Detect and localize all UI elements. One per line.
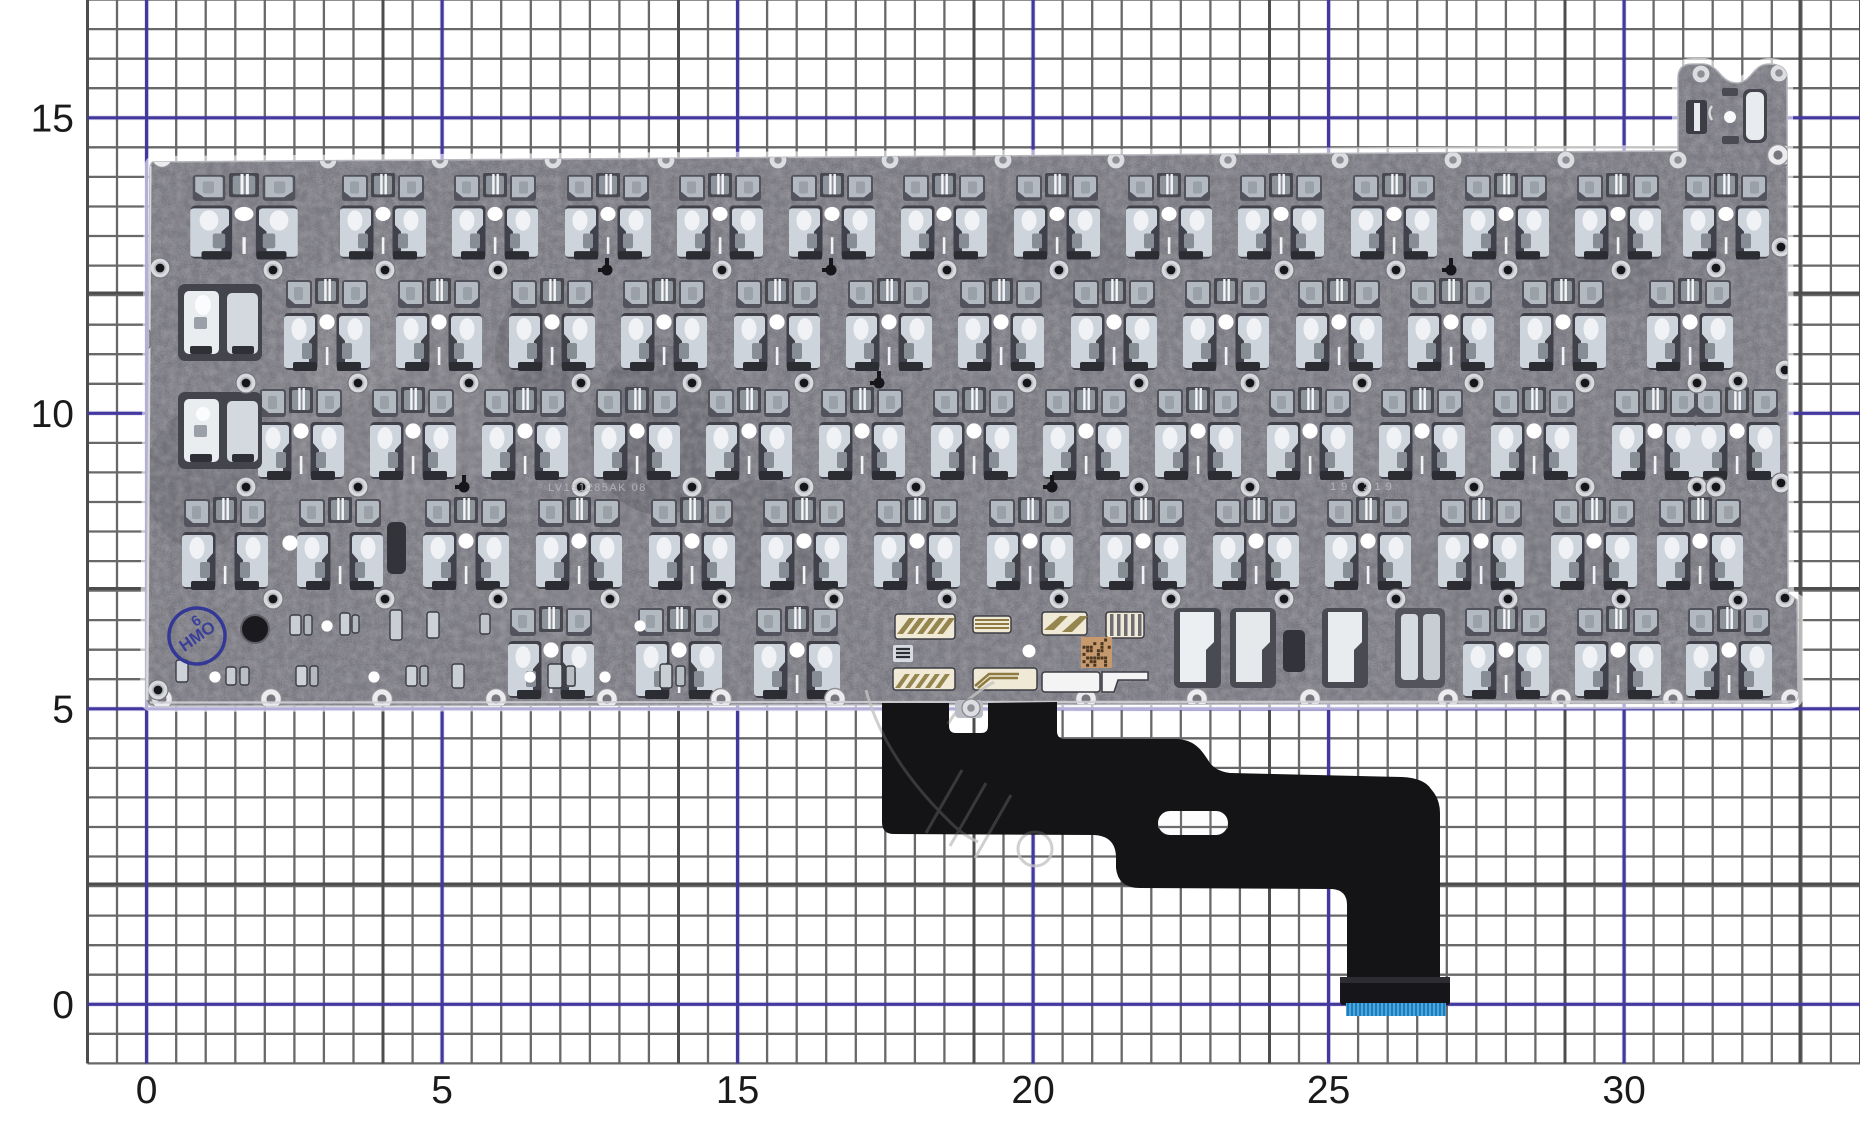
svg-text:25: 25 bbox=[1307, 1069, 1350, 1112]
svg-text:5: 5 bbox=[431, 1069, 453, 1112]
svg-text:30: 30 bbox=[1602, 1069, 1645, 1112]
svg-text:20: 20 bbox=[1011, 1069, 1054, 1112]
svg-text:0: 0 bbox=[52, 984, 74, 1027]
svg-text:15: 15 bbox=[716, 1069, 759, 1112]
svg-text:191219: 191219 bbox=[1330, 481, 1397, 493]
svg-text:5: 5 bbox=[52, 688, 74, 731]
svg-text:10: 10 bbox=[31, 393, 74, 436]
svg-text:15: 15 bbox=[31, 97, 74, 140]
svg-text:LV191285AK 08: LV191285AK 08 bbox=[548, 482, 647, 494]
svg-text:0: 0 bbox=[136, 1069, 158, 1112]
